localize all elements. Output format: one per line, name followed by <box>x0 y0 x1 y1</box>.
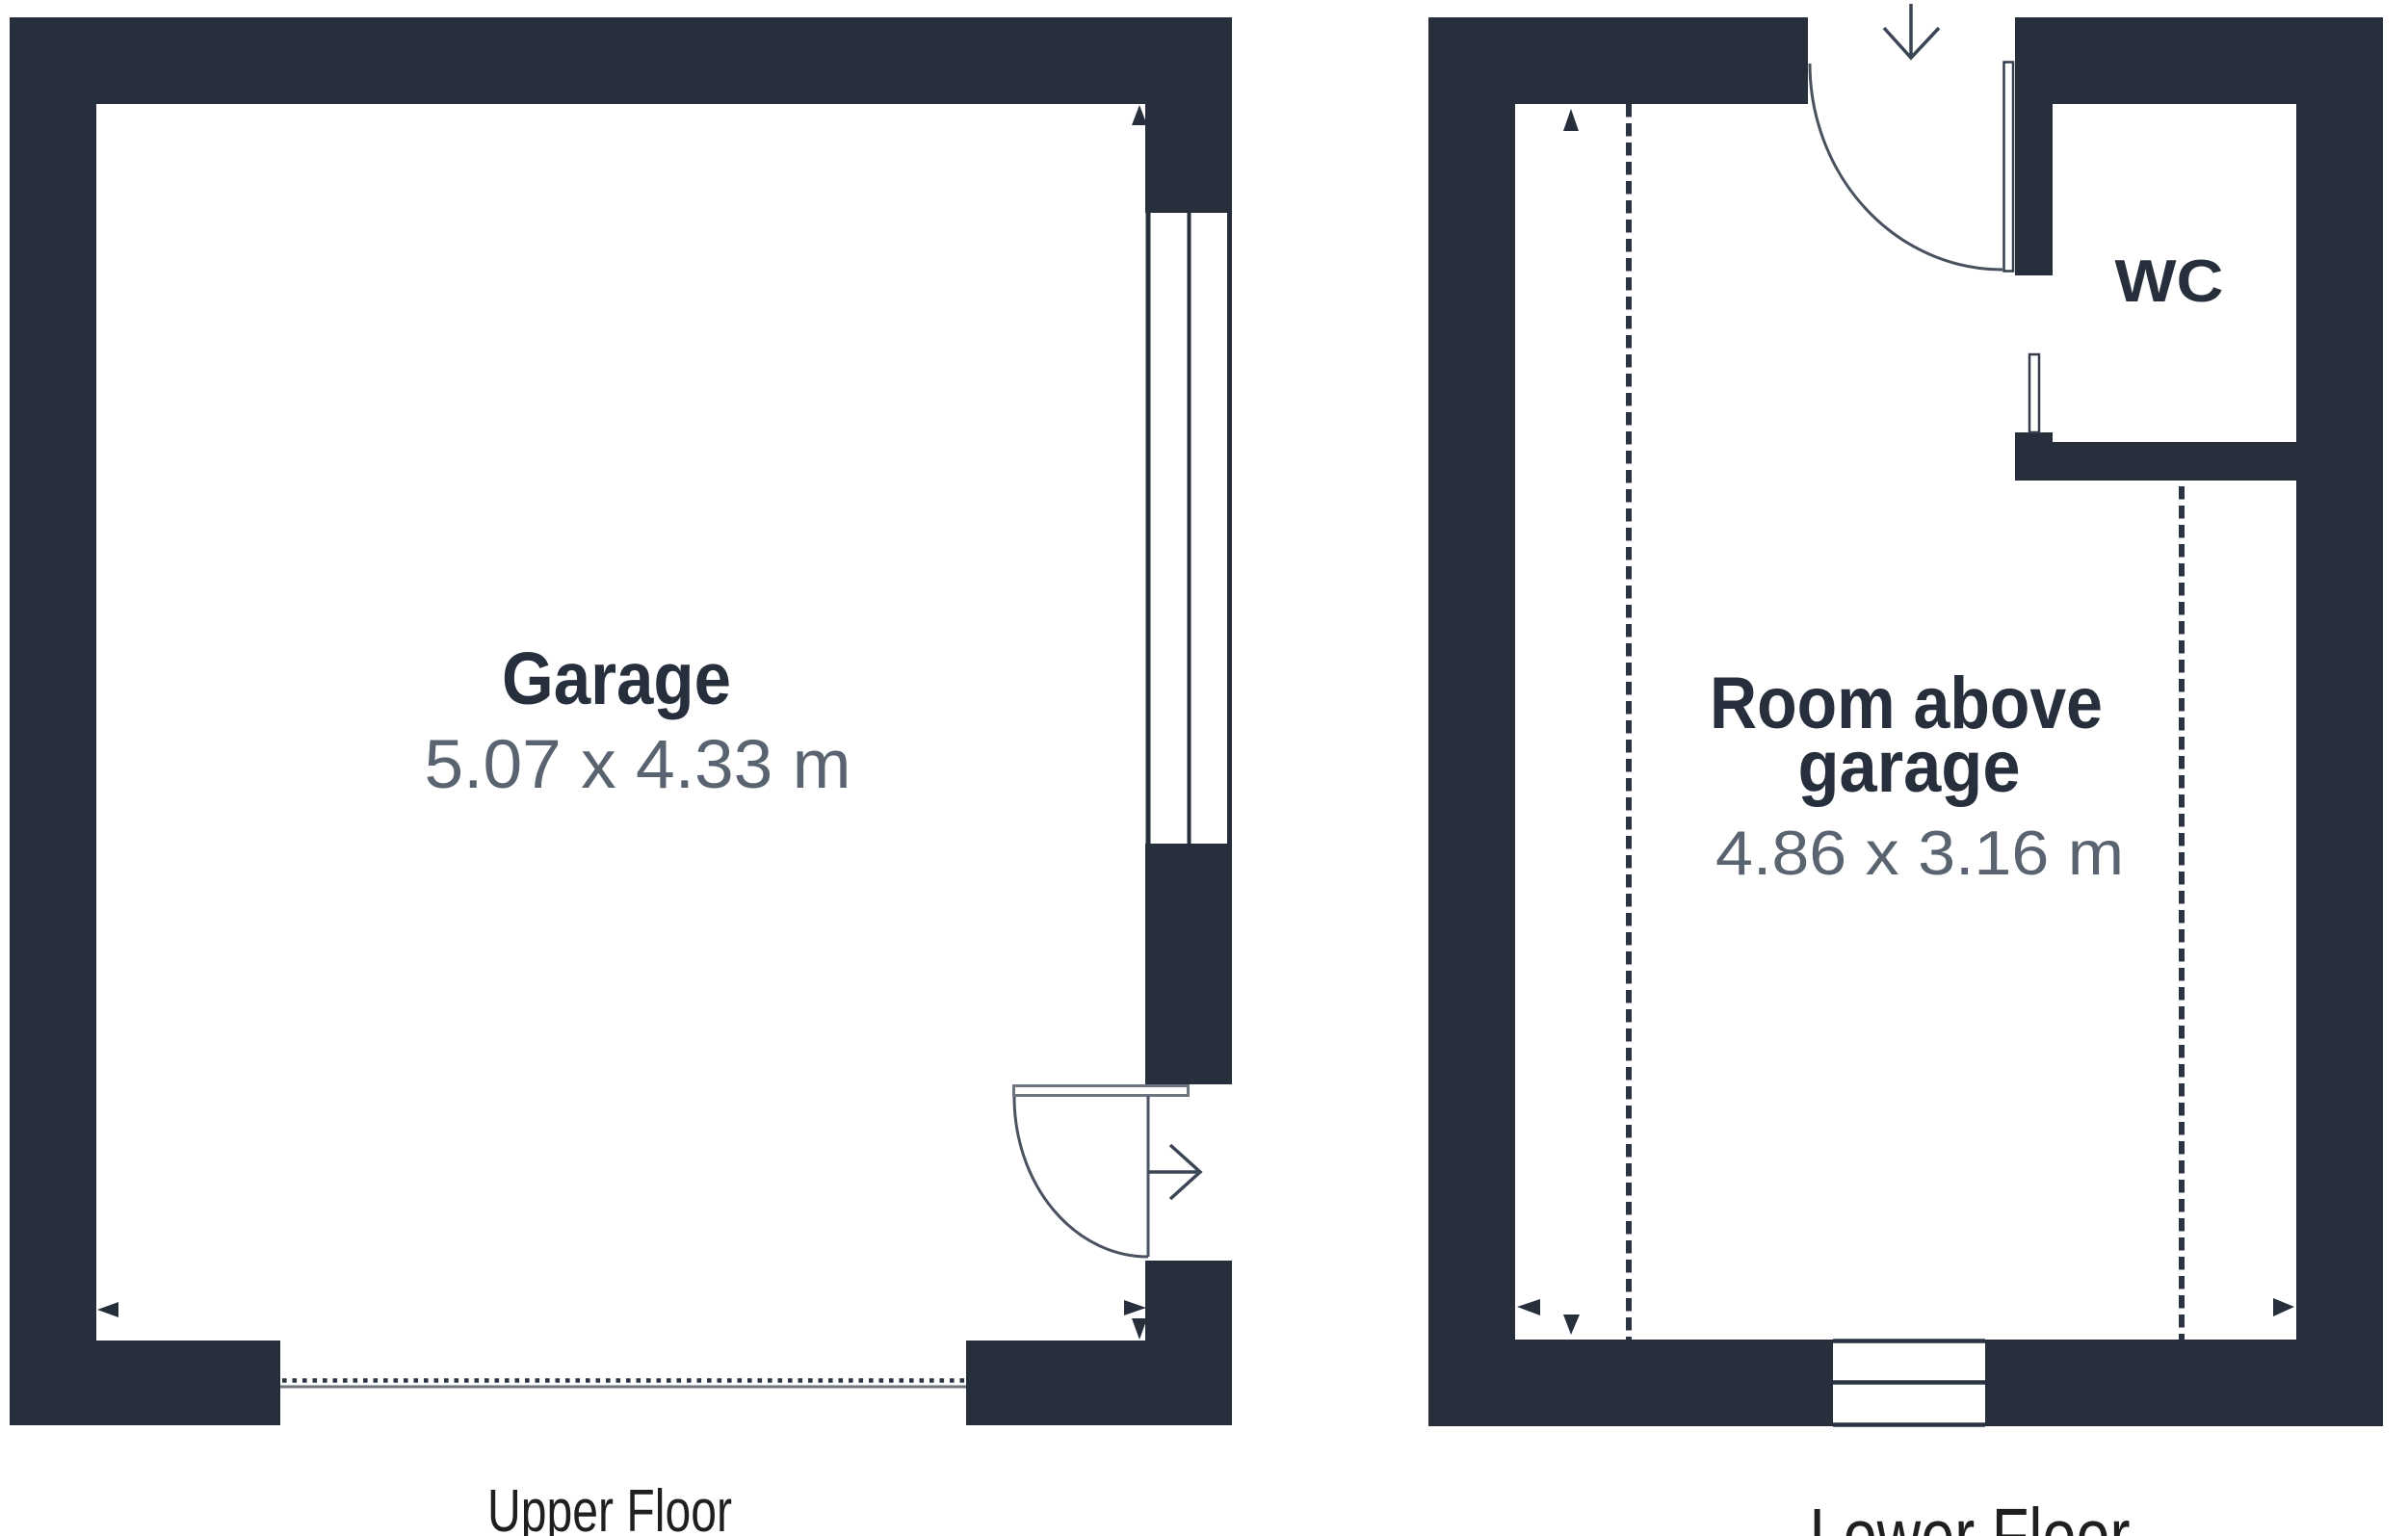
svg-text:4.86 x 3.16 m: 4.86 x 3.16 m <box>1715 818 2124 888</box>
svg-text:Garage: Garage <box>502 638 731 720</box>
svg-text:Lower Floor: Lower Floor <box>1810 1493 2131 1536</box>
svg-text:garage: garage <box>1798 726 2021 808</box>
svg-text:WC: WC <box>2115 248 2224 315</box>
svg-text:5.07 x 4.33 m: 5.07 x 4.33 m <box>425 727 851 803</box>
svg-text:Upper Floor: Upper Floor <box>487 1478 732 1536</box>
